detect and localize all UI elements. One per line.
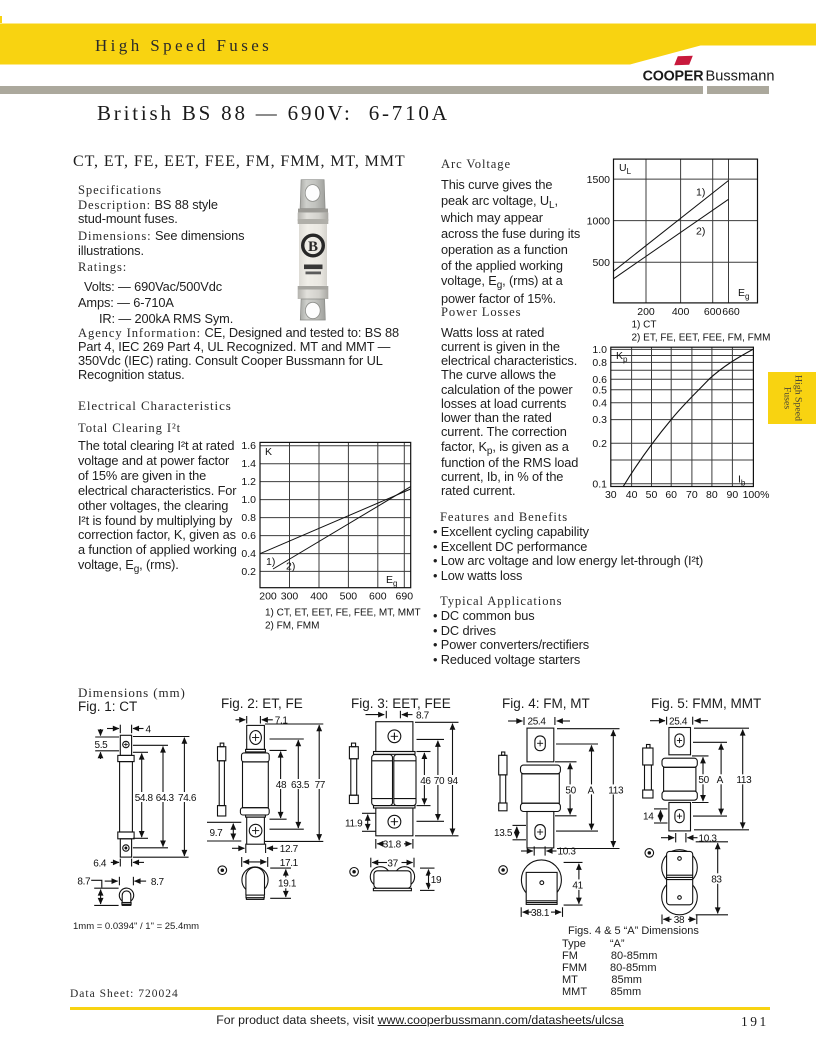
svg-text:46: 46 xyxy=(420,776,431,787)
svg-text:8.7: 8.7 xyxy=(77,877,91,888)
svg-text:19: 19 xyxy=(431,875,442,886)
svg-text:2): 2) xyxy=(286,561,295,573)
svg-text:38.1: 38.1 xyxy=(531,908,550,919)
svg-text:K: K xyxy=(265,446,272,458)
svg-text:7.1: 7.1 xyxy=(275,716,289,727)
svg-text:1) CT, ET, EET, FE, FEE, MT, M: 1) CT, ET, EET, FE, FEE, MT, MMT xyxy=(265,608,421,619)
svg-text:2): 2) xyxy=(696,226,705,238)
svg-text:54.8: 54.8 xyxy=(135,793,154,804)
svg-text:0.8: 0.8 xyxy=(592,357,607,369)
svg-text:0.5: 0.5 xyxy=(592,384,607,396)
svg-text:Eg: Eg xyxy=(386,574,397,588)
svg-text:1.2: 1.2 xyxy=(241,476,256,488)
svg-text:1.0: 1.0 xyxy=(592,344,607,356)
svg-text:690: 690 xyxy=(396,591,414,603)
svg-text:1): 1) xyxy=(266,556,275,568)
svg-text:113: 113 xyxy=(608,785,624,796)
svg-text:UL: UL xyxy=(619,162,632,176)
svg-text:5.5: 5.5 xyxy=(95,740,109,751)
svg-text:Kp: Kp xyxy=(616,350,628,364)
svg-text:14: 14 xyxy=(643,812,654,823)
svg-text:64.3: 64.3 xyxy=(156,793,175,804)
svg-text:12.7: 12.7 xyxy=(280,844,299,855)
svg-text:25.4: 25.4 xyxy=(528,717,547,728)
svg-text:A: A xyxy=(588,785,595,796)
svg-text:50: 50 xyxy=(646,489,658,501)
svg-text:19.1: 19.1 xyxy=(278,879,297,890)
svg-text:41: 41 xyxy=(572,881,583,892)
svg-text:17.1: 17.1 xyxy=(280,858,299,869)
svg-text:90: 90 xyxy=(727,489,739,501)
svg-text:25.4: 25.4 xyxy=(669,716,688,727)
svg-text:100%: 100% xyxy=(743,489,770,501)
svg-text:50: 50 xyxy=(698,775,709,786)
svg-text:40: 40 xyxy=(626,489,638,501)
svg-text:400: 400 xyxy=(310,591,328,603)
svg-text:9.7: 9.7 xyxy=(210,828,224,839)
svg-text:Ib: Ib xyxy=(738,474,746,488)
svg-text:2) FM, FMM: 2) FM, FMM xyxy=(265,621,319,632)
svg-text:0.4: 0.4 xyxy=(592,397,607,409)
svg-text:6.4: 6.4 xyxy=(93,858,107,869)
svg-text:500: 500 xyxy=(592,257,610,269)
svg-text:500: 500 xyxy=(340,591,358,603)
svg-text:8.7: 8.7 xyxy=(416,710,430,721)
svg-text:70: 70 xyxy=(434,776,445,787)
svg-text:4: 4 xyxy=(146,724,152,735)
svg-text:0.8: 0.8 xyxy=(241,512,256,524)
svg-text:13.5: 13.5 xyxy=(494,828,513,839)
svg-text:1.0: 1.0 xyxy=(241,494,256,506)
svg-text:77: 77 xyxy=(315,780,326,791)
svg-text:COOPER: COOPER xyxy=(643,68,705,84)
svg-text:11.9: 11.9 xyxy=(345,818,363,829)
svg-text:1.4: 1.4 xyxy=(241,458,256,470)
svg-text:Bussmann: Bussmann xyxy=(706,68,775,84)
svg-text:94: 94 xyxy=(447,776,458,787)
svg-text:48: 48 xyxy=(276,780,287,791)
svg-text:8.7: 8.7 xyxy=(151,877,165,888)
svg-text:600: 600 xyxy=(369,591,387,603)
svg-text:400: 400 xyxy=(672,306,690,318)
svg-text:300: 300 xyxy=(281,591,299,603)
svg-text:70: 70 xyxy=(686,489,698,501)
svg-text:31.8: 31.8 xyxy=(383,840,402,851)
svg-text:60: 60 xyxy=(665,489,677,501)
svg-text:A: A xyxy=(717,775,724,786)
svg-text:74.6: 74.6 xyxy=(178,793,197,804)
svg-text:200: 200 xyxy=(259,591,277,603)
svg-text:0.3: 0.3 xyxy=(592,414,607,426)
svg-text:1): 1) xyxy=(696,187,705,199)
svg-text:30: 30 xyxy=(605,489,617,501)
svg-text:660: 660 xyxy=(722,306,740,318)
svg-text:50: 50 xyxy=(565,785,576,796)
svg-text:63.5: 63.5 xyxy=(291,780,310,791)
svg-text:10.3: 10.3 xyxy=(558,847,577,858)
svg-text:Eg: Eg xyxy=(738,287,749,301)
svg-text:0.2: 0.2 xyxy=(241,566,256,578)
svg-text:0.6: 0.6 xyxy=(241,530,256,542)
svg-text:1000: 1000 xyxy=(587,215,611,227)
svg-text:1500: 1500 xyxy=(587,174,611,186)
svg-text:200: 200 xyxy=(637,306,655,318)
svg-text:10.3: 10.3 xyxy=(699,833,718,844)
svg-text:37: 37 xyxy=(387,858,398,869)
svg-text:0.4: 0.4 xyxy=(241,548,256,560)
svg-text:1.6: 1.6 xyxy=(241,440,256,452)
svg-text:600: 600 xyxy=(704,306,722,318)
svg-text:113: 113 xyxy=(736,775,752,786)
svg-text:80: 80 xyxy=(706,489,718,501)
svg-text:83: 83 xyxy=(711,875,722,886)
svg-text:0.2: 0.2 xyxy=(592,438,607,450)
svg-text:B: B xyxy=(308,239,318,255)
svg-text:1) CT: 1) CT xyxy=(632,320,657,331)
